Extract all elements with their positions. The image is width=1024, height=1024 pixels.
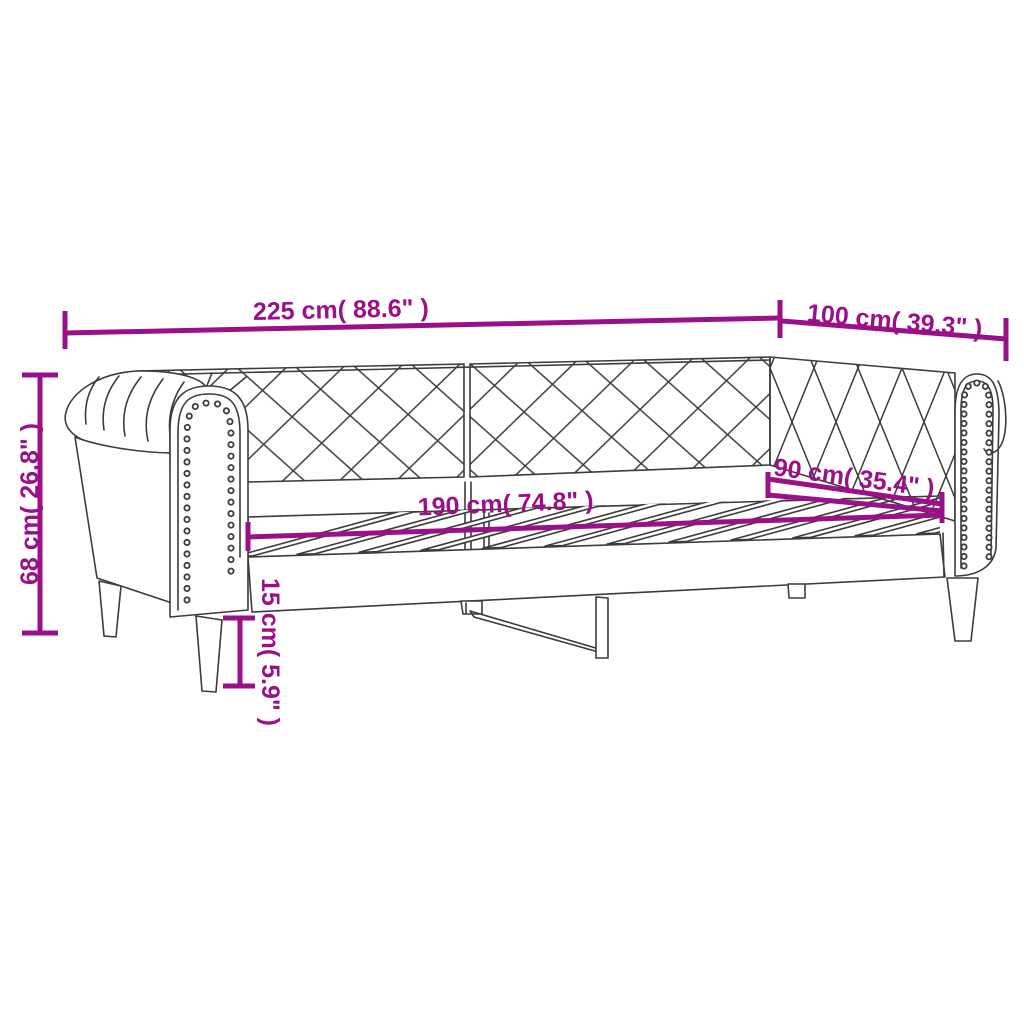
diagram-stage: 225 cm( 88.6" ) 100 cm( 39.3" ) 68 cm( 2… bbox=[0, 0, 1024, 1024]
under-frame-post bbox=[596, 597, 608, 658]
right-arm-front-corner bbox=[943, 533, 944, 577]
daybed-dimension-diagram: 225 cm( 88.6" ) 100 cm( 39.3" ) 68 cm( 2… bbox=[0, 0, 1024, 1024]
dim-bed-length-label: 190 cm( 74.8" ) bbox=[417, 486, 594, 521]
dim-ground-clearance-label: 15 cm( 5.9" ) bbox=[256, 578, 284, 726]
left-arm bbox=[65, 371, 248, 692]
left-arm-side-panel bbox=[75, 437, 172, 603]
dim-total-length-label: 225 cm( 88.6" ) bbox=[253, 294, 429, 326]
dim-ground-clearance bbox=[223, 618, 255, 686]
left-back-leg bbox=[99, 581, 121, 637]
right-front-leg bbox=[947, 578, 978, 641]
dim-total-depth-label: 100 cm( 39.3" ) bbox=[806, 299, 984, 343]
dim-total-height-label: 68 cm( 26.8" ) bbox=[16, 423, 44, 585]
under-frame-diagonal-tube bbox=[470, 611, 602, 653]
left-arm-front-band bbox=[170, 386, 248, 617]
daybed-drawing bbox=[65, 357, 1024, 692]
under-frame-bracket-right bbox=[788, 584, 805, 598]
left-front-leg bbox=[196, 616, 222, 692]
backrest-panel-right bbox=[470, 357, 770, 477]
